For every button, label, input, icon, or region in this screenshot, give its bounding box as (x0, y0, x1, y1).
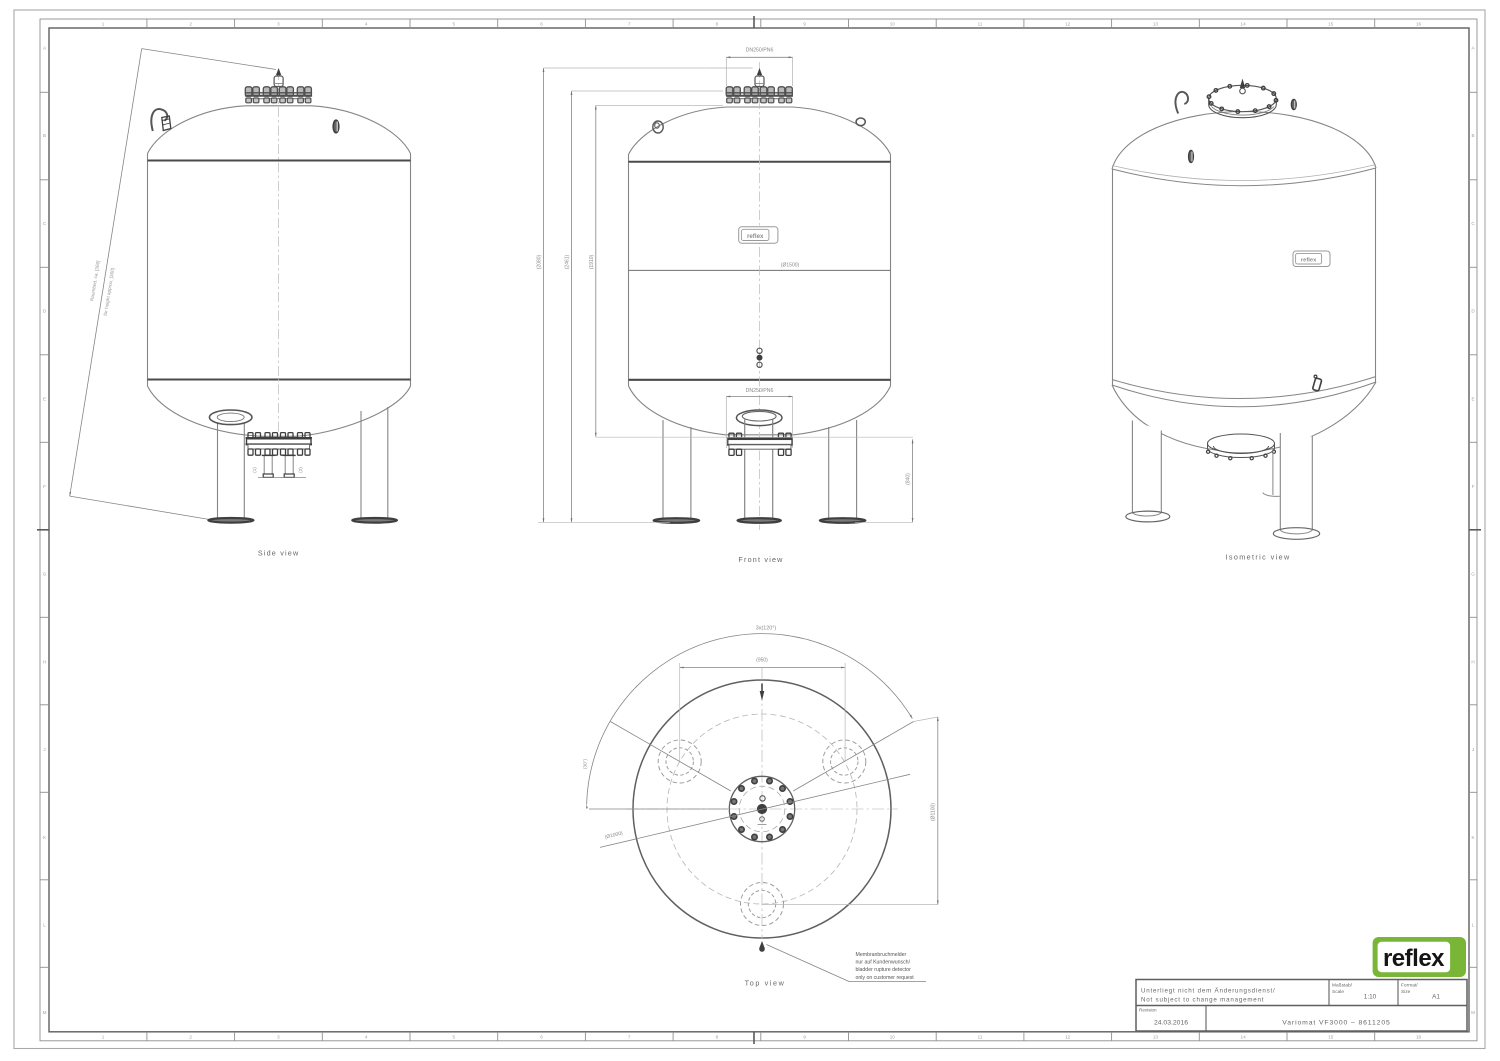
svg-text:2: 2 (189, 1035, 192, 1040)
svg-text:Membranbruchmelder: Membranbruchmelder (856, 952, 907, 958)
svg-text:Side view: Side view (258, 549, 300, 558)
svg-text:(840): (840) (905, 473, 911, 485)
svg-text:1: 1 (102, 1035, 105, 1040)
svg-text:reflex: reflex (747, 233, 764, 240)
svg-text:(1): (1) (252, 467, 257, 473)
svg-text:(Ø1500): (Ø1500) (781, 262, 800, 268)
svg-text:(2461): (2461) (565, 254, 571, 269)
svg-text:6: 6 (540, 1035, 543, 1040)
svg-text:B: B (43, 133, 46, 138)
svg-text:Isometric view: Isometric view (1225, 553, 1290, 562)
svg-text:H: H (1471, 659, 1474, 664)
svg-text:L: L (43, 923, 46, 928)
svg-text:only on customer request: only on customer request (856, 975, 915, 981)
svg-text:Size: Size (1401, 989, 1411, 995)
svg-text:F: F (1472, 484, 1475, 489)
svg-text:2: 2 (189, 22, 192, 27)
svg-text:Revision: Revision (1139, 1008, 1157, 1013)
svg-text:Maßstab/: Maßstab/ (1332, 983, 1353, 989)
svg-text:H: H (43, 659, 46, 664)
svg-text:(2): (2) (298, 467, 303, 473)
svg-text:7: 7 (628, 22, 631, 27)
svg-text:Front view: Front view (738, 555, 783, 564)
svg-text:Not subject to change manageme: Not subject to change management (1141, 997, 1264, 1004)
svg-text:24.03.2016: 24.03.2016 (1154, 1020, 1188, 1027)
svg-text:16: 16 (1416, 1035, 1422, 1040)
svg-text:12: 12 (1065, 1035, 1071, 1040)
svg-text:12: 12 (1065, 22, 1071, 27)
svg-text:4: 4 (365, 1035, 368, 1040)
svg-text:1: 1 (102, 22, 105, 27)
svg-text:3x(120°): 3x(120°) (756, 626, 777, 632)
svg-text:15: 15 (1328, 22, 1334, 27)
svg-text:reflex: reflex (1301, 257, 1317, 263)
svg-text:(950): (950) (756, 658, 768, 664)
svg-text:DN250/PN6: DN250/PN6 (746, 48, 774, 54)
svg-text:(Ø1100): (Ø1100) (931, 803, 937, 821)
svg-text:1:10: 1:10 (1364, 994, 1377, 1001)
svg-text:nur auf Kundenwunsch/: nur auf Kundenwunsch/ (856, 960, 911, 966)
svg-text:F: F (43, 484, 46, 489)
svg-text:3: 3 (277, 22, 280, 27)
svg-text:Variomat VF3000 – 8611205: Variomat VF3000 – 8611205 (1282, 1020, 1390, 1027)
svg-text:13: 13 (1153, 22, 1159, 27)
svg-text:B: B (1471, 133, 1474, 138)
svg-text:M: M (1471, 1010, 1475, 1015)
svg-text:11: 11 (978, 22, 983, 27)
svg-text:5: 5 (453, 22, 456, 27)
svg-text:bladder rupture detector: bladder rupture detector (856, 967, 912, 973)
svg-text:(2080): (2080) (537, 254, 543, 269)
svg-text:8: 8 (716, 1035, 719, 1040)
svg-text:reflex: reflex (1383, 945, 1445, 972)
svg-text:E: E (1471, 396, 1474, 401)
svg-text:4: 4 (365, 22, 368, 27)
svg-text:Top view: Top view (745, 979, 786, 988)
svg-text:16: 16 (1416, 22, 1422, 27)
svg-text:(1910): (1910) (589, 254, 595, 269)
svg-text:11: 11 (978, 1035, 983, 1040)
svg-text:J: J (43, 747, 45, 752)
svg-text:9: 9 (803, 22, 806, 27)
svg-text:14: 14 (1241, 22, 1247, 27)
svg-text:7: 7 (628, 1035, 631, 1040)
svg-text:15: 15 (1328, 1035, 1334, 1040)
svg-text:E: E (43, 396, 46, 401)
svg-text:G: G (43, 572, 47, 577)
svg-text:3: 3 (277, 1035, 280, 1040)
svg-text:(30°): (30°) (583, 759, 588, 769)
svg-text:10: 10 (890, 22, 896, 27)
svg-text:Scale: Scale (1332, 989, 1344, 995)
svg-text:A1: A1 (1432, 994, 1440, 1001)
svg-text:10: 10 (890, 1035, 896, 1040)
svg-text:G: G (1471, 572, 1475, 577)
svg-text:L: L (1472, 923, 1475, 928)
svg-text:8: 8 (716, 22, 719, 27)
svg-text:14: 14 (1241, 1035, 1247, 1040)
svg-text:DN250/PN6: DN250/PN6 (746, 388, 774, 394)
svg-text:13: 13 (1153, 1035, 1159, 1040)
svg-text:Unterliegt nicht dem Änderungs: Unterliegt nicht dem Änderungsdienst/ (1141, 988, 1276, 995)
svg-text:J: J (1472, 747, 1474, 752)
svg-text:9: 9 (803, 1035, 806, 1040)
svg-text:6: 6 (540, 22, 543, 27)
svg-text:M: M (43, 1010, 47, 1015)
svg-text:Format/: Format/ (1401, 983, 1418, 989)
svg-text:5: 5 (453, 1035, 456, 1040)
